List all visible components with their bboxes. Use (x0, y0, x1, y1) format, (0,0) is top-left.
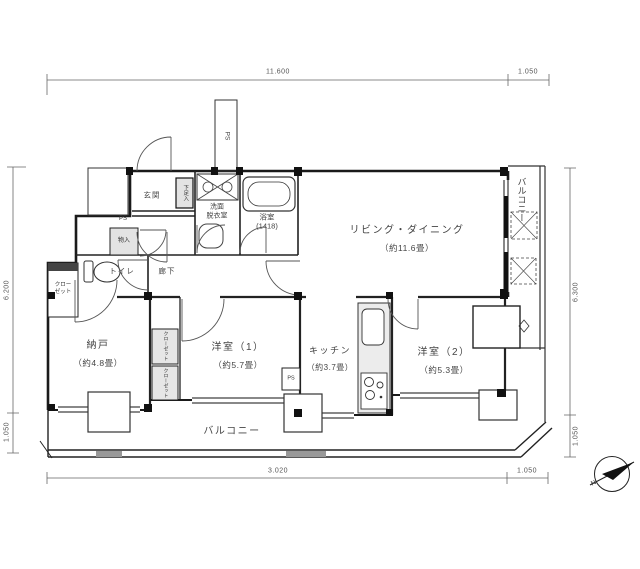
dim-right-bottom: 1.050 (573, 426, 580, 446)
dim-bottom-right: 1.050 (517, 468, 537, 475)
room-nando-area: （約4.8畳） (73, 359, 122, 368)
railing-vents (96, 451, 326, 457)
dim-right-main: 6.300 (573, 282, 580, 302)
ps-shaft-label: PS (223, 132, 230, 141)
room-hallway: 廊下 (159, 267, 176, 275)
dim-left-bottom: 1.050 (4, 422, 11, 442)
room-bedroom2: 洋室（2） (417, 348, 470, 358)
kitchen-counter (358, 303, 390, 413)
side-balcony-walls (508, 166, 545, 422)
room-kitchen-area: （約3.7畳） (307, 364, 354, 372)
room-toilet: トイレ (109, 267, 135, 275)
washroom-line2: 脱衣室 (207, 212, 228, 221)
bathroom-size: (1418) (256, 222, 278, 231)
dim-top-right: 1.050 (518, 69, 538, 76)
dim-top-main: 11.600 (266, 69, 290, 76)
room-kitchen: キッチン (309, 347, 351, 356)
room-living-dining-area: （約11.6畳） (380, 244, 434, 253)
outdoor-unit-boxes (511, 212, 537, 284)
room-bedroom1-area: （約5.7畳） (213, 361, 262, 370)
ps-kitchen-label: PS (287, 376, 294, 382)
wash-basin-counter (197, 174, 238, 200)
room-nando: 納戸 (87, 341, 110, 351)
room-entrance: 玄関 (144, 191, 161, 199)
closet-a-label: クローゼット (163, 331, 168, 361)
storage-label: 物入 (118, 238, 130, 244)
room-bathroom: 浴室 (1418) (256, 213, 278, 232)
room-side-balcony: バルコニー (516, 177, 527, 211)
room-living-dining: リビング・ダイニング (350, 226, 465, 236)
closet-left-line2: ゼット (55, 289, 72, 296)
room-bedroom2-area: （約5.3畳） (419, 366, 468, 375)
dim-left-main: 6.200 (4, 280, 11, 300)
closet-left-label: クロー ゼット (55, 282, 72, 296)
bathtub (243, 177, 295, 211)
ps-entrance-label: PS (119, 216, 127, 222)
washroom-line1: 洗面 (207, 203, 228, 212)
bedroom2-closet-box (473, 306, 529, 348)
wall-columns (48, 167, 508, 417)
room-washroom: 洗面 脱衣室 (207, 203, 228, 221)
floorplan-page: 11.600 1.050 6.200 1.050 6.300 1.050 3.0… (0, 0, 640, 569)
dim-bottom-main: 3.020 (268, 468, 288, 475)
bathroom-name: 浴室 (256, 213, 278, 222)
closet-b-label: クローゼット (163, 368, 168, 398)
floorplan-drawing (0, 0, 640, 569)
room-bedroom1: 洋室（1） (211, 343, 264, 353)
room-balcony: バルコニー (203, 427, 260, 437)
closet-left-line1: クロー (55, 282, 72, 289)
shoe-cabinet-label: 下足入 (182, 185, 188, 202)
pipe-shaft (88, 100, 237, 215)
